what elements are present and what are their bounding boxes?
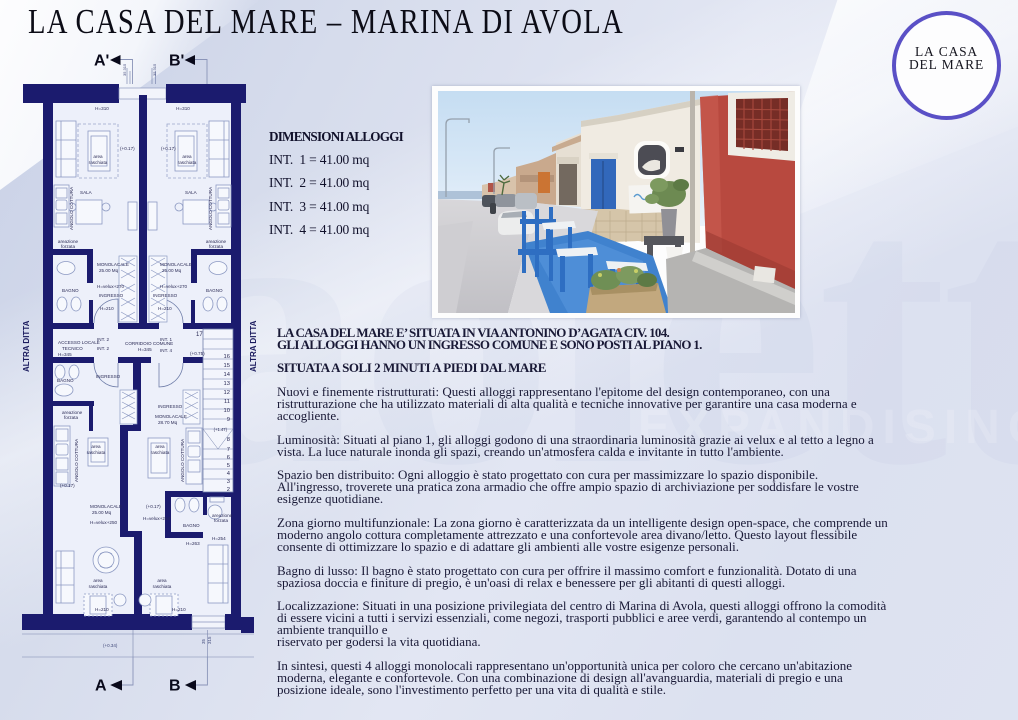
svg-text:area: area — [155, 444, 165, 449]
svg-text:10: 10 — [224, 408, 230, 414]
svg-text:ANGOLO COTTURA: ANGOLO COTTURA — [208, 186, 213, 230]
svg-text:H=velux+254: H=velux+254 — [143, 516, 171, 521]
svg-text:9: 9 — [227, 417, 230, 423]
svg-text:17: 17 — [196, 332, 203, 338]
svg-text:H=velux+270: H=velux+270 — [160, 284, 188, 289]
svg-text:area: area — [182, 154, 192, 159]
svg-text:H=210: H=210 — [172, 607, 186, 612]
svg-text:H=210: H=210 — [158, 306, 172, 311]
svg-text:area: area — [157, 578, 167, 583]
svg-text:12: 12 — [224, 390, 230, 396]
svg-text:INT. 1: INT. 1 — [160, 337, 172, 342]
svg-text:35 315: 35 315 — [152, 63, 157, 76]
svg-text:raschiata: raschiata — [153, 584, 172, 589]
svg-text:raschiata: raschiata — [87, 450, 106, 455]
svg-text:raschiata: raschiata — [89, 160, 108, 165]
svg-text:(+0.17): (+0.17) — [60, 483, 75, 488]
svg-text:forzata: forzata — [64, 415, 78, 420]
svg-text:INGRESSO: INGRESSO — [158, 404, 183, 409]
svg-text:MONOLACALE: MONOLACALE — [90, 504, 122, 509]
svg-text:MONOLACALE: MONOLACALE — [160, 262, 192, 267]
svg-text:H=310: H=310 — [176, 106, 190, 111]
svg-text:BAGNO: BAGNO — [62, 288, 79, 293]
svg-text:6: 6 — [227, 455, 230, 461]
svg-text:2: 2 — [227, 487, 230, 493]
svg-text:TECNICO: TECNICO — [62, 346, 83, 351]
svg-text:8: 8 — [227, 437, 230, 443]
svg-text:35: 35 — [201, 638, 206, 644]
svg-text:H=velux+270: H=velux+270 — [97, 284, 125, 289]
svg-text:H=310: H=310 — [95, 106, 109, 111]
svg-text:11: 11 — [224, 399, 230, 405]
svg-text:MONOLACALE: MONOLACALE — [155, 414, 187, 419]
svg-text:BAGNO: BAGNO — [183, 523, 200, 528]
svg-text:BAGNO: BAGNO — [57, 378, 74, 383]
svg-text:(+0.17): (+0.17) — [120, 146, 135, 151]
svg-text:H=345: H=345 — [138, 347, 152, 352]
svg-text:H=210: H=210 — [100, 306, 114, 311]
svg-text:315: 315 — [207, 636, 212, 644]
svg-text:25.00 Mq: 25.00 Mq — [99, 268, 119, 273]
svg-text:SALA: SALA — [80, 190, 93, 195]
svg-text:area: area — [93, 578, 103, 583]
svg-text:H=263: H=263 — [186, 541, 200, 546]
svg-text:INT. 4: INT. 4 — [160, 348, 172, 353]
svg-text:BAGNO: BAGNO — [206, 288, 223, 293]
svg-text:raschiata: raschiata — [151, 450, 170, 455]
svg-text:ANGOLO COTTURA: ANGOLO COTTURA — [69, 186, 74, 230]
svg-text:area: area — [91, 444, 101, 449]
svg-text:B': B' — [169, 53, 184, 70]
svg-text:ALTRA DITTA: ALTRA DITTA — [249, 320, 258, 372]
svg-text:(+0.34): (+0.34) — [103, 643, 118, 648]
svg-text:ACCESSO LOCALE: ACCESSO LOCALE — [58, 340, 100, 345]
svg-text:ALTRA DITTA: ALTRA DITTA — [22, 320, 31, 372]
svg-text:(+0.17): (+0.17) — [161, 146, 176, 151]
svg-text:H=254: H=254 — [212, 536, 226, 541]
svg-text:H=velux+250: H=velux+250 — [90, 520, 118, 525]
svg-text:area: area — [93, 154, 103, 159]
svg-text:raschiata: raschiata — [89, 584, 108, 589]
svg-text:INGRESSO: INGRESSO — [99, 293, 124, 298]
svg-text:SALA: SALA — [185, 190, 198, 195]
svg-text:15: 15 — [224, 363, 230, 369]
svg-text:25.00 Mq: 25.00 Mq — [162, 268, 182, 273]
svg-text:28.70 Mq: 28.70 Mq — [158, 420, 178, 425]
svg-text:A: A — [95, 678, 107, 695]
svg-text:forzata: forzata — [214, 518, 228, 523]
svg-text:5: 5 — [227, 463, 230, 469]
svg-text:INT. 2: INT. 2 — [97, 346, 109, 351]
svg-text:16: 16 — [224, 354, 230, 360]
svg-text:B: B — [169, 678, 181, 695]
svg-text:raschiata: raschiata — [178, 160, 197, 165]
svg-text:A': A' — [94, 53, 109, 70]
svg-text:H=210: H=210 — [95, 607, 109, 612]
svg-text:35 315: 35 315 — [122, 63, 127, 76]
svg-text:INGRESSO: INGRESSO — [153, 293, 178, 298]
svg-text:7: 7 — [227, 447, 230, 453]
svg-text:INGRESSO: INGRESSO — [96, 374, 121, 379]
svg-text:forzata: forzata — [61, 244, 75, 249]
svg-text:(+0.17): (+0.17) — [146, 504, 161, 509]
svg-text:25.00 Mq: 25.00 Mq — [92, 510, 112, 515]
svg-text:14: 14 — [224, 372, 231, 378]
svg-text:3: 3 — [227, 479, 230, 485]
svg-text:(+1.47): (+1.47) — [214, 427, 228, 432]
svg-text:ANGOLO COTTURA: ANGOLO COTTURA — [74, 438, 79, 482]
svg-text:ANGOLO COTTURA: ANGOLO COTTURA — [180, 438, 185, 482]
svg-text:13: 13 — [224, 381, 230, 387]
svg-text:MONOLACALE: MONOLACALE — [97, 262, 129, 267]
svg-text:forzata: forzata — [209, 244, 223, 249]
svg-text:H=345: H=345 — [58, 352, 72, 357]
svg-text:(+0.75): (+0.75) — [190, 351, 205, 356]
